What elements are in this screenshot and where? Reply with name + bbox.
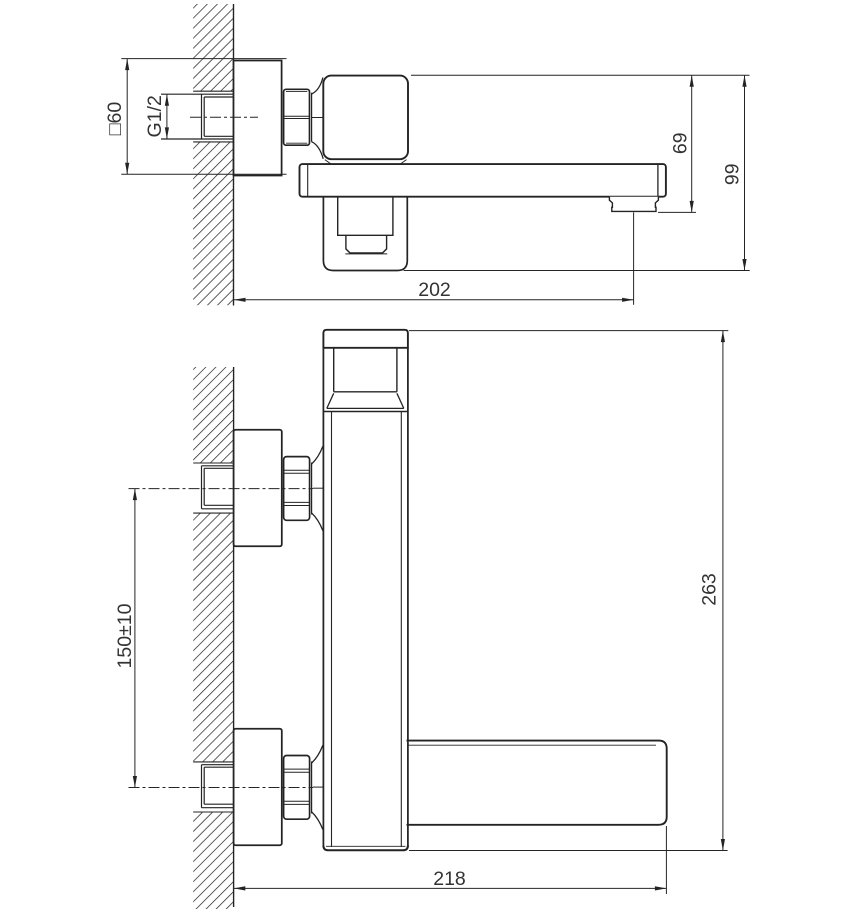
svg-text:218: 218	[433, 868, 466, 890]
svg-text:G1/2: G1/2	[144, 95, 166, 137]
svg-text:□60: □60	[104, 102, 126, 136]
svg-text:99: 99	[721, 163, 743, 185]
svg-text:150±10: 150±10	[114, 603, 136, 668]
svg-text:202: 202	[418, 279, 451, 301]
svg-text:263: 263	[699, 573, 721, 606]
svg-text:69: 69	[669, 132, 691, 154]
